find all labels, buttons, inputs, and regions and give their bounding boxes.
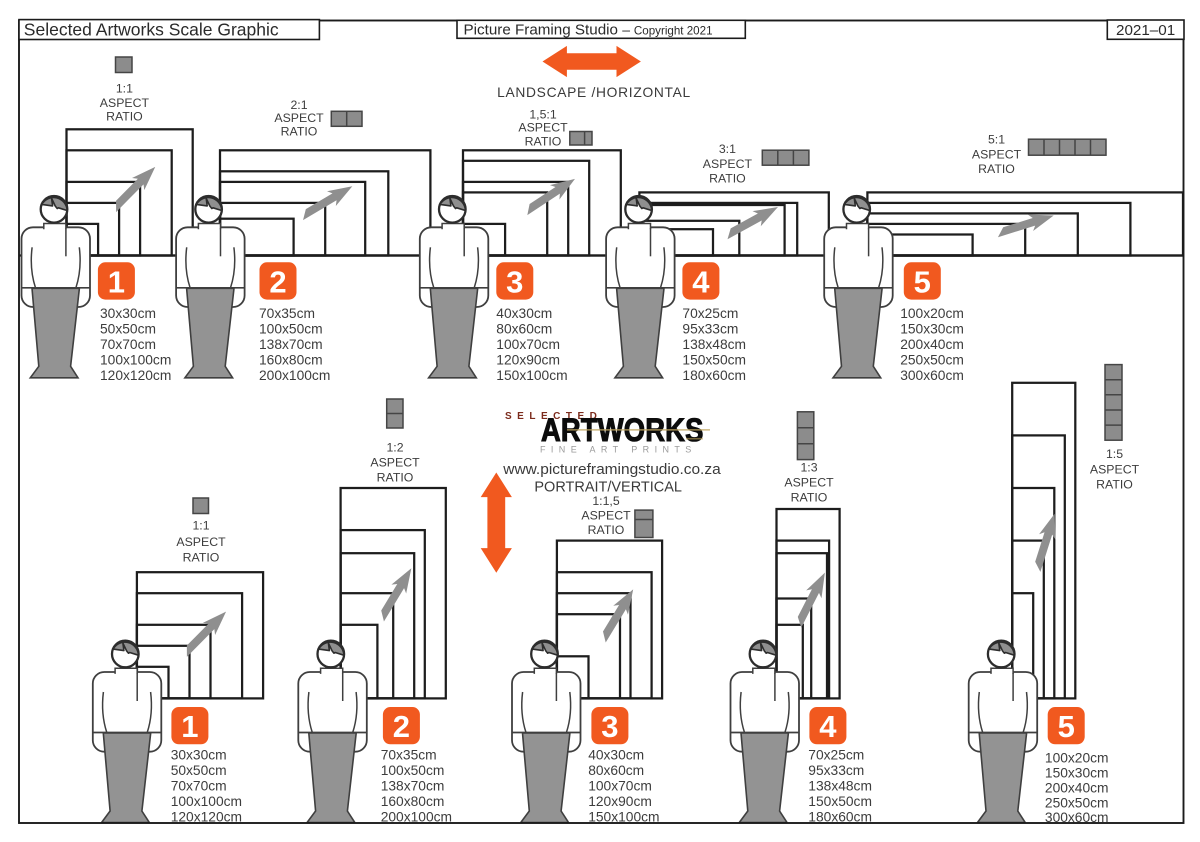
- svg-text:70x70cm: 70x70cm: [171, 779, 227, 794]
- svg-text:www.pictureframingstudio.co.za: www.pictureframingstudio.co.za: [502, 462, 721, 478]
- svg-text:180x60cm: 180x60cm: [682, 368, 746, 383]
- svg-text:1:1,5: 1:1,5: [592, 494, 620, 508]
- svg-text:4: 4: [819, 709, 837, 744]
- svg-text:30x30cm: 30x30cm: [100, 306, 156, 321]
- svg-text:95x33cm: 95x33cm: [682, 321, 738, 336]
- svg-text:1:1: 1:1: [192, 519, 209, 533]
- svg-text:4: 4: [692, 264, 710, 299]
- svg-text:5:1: 5:1: [988, 132, 1005, 146]
- svg-text:70x25cm: 70x25cm: [682, 306, 738, 321]
- svg-text:120x120cm: 120x120cm: [100, 368, 171, 383]
- svg-text:40x30cm: 40x30cm: [496, 306, 552, 321]
- svg-text:100x70cm: 100x70cm: [588, 779, 652, 794]
- svg-text:70x35cm: 70x35cm: [381, 747, 437, 762]
- svg-text:1: 1: [181, 709, 198, 744]
- svg-text:RATIO: RATIO: [588, 523, 625, 537]
- svg-text:1,5:1: 1,5:1: [529, 108, 557, 122]
- svg-text:FINE ART PRINTS: FINE ART PRINTS: [540, 444, 697, 454]
- svg-text:1:1: 1:1: [116, 82, 133, 96]
- svg-text:Selected Artworks Scale Graphi: Selected Artworks Scale Graphic: [24, 20, 279, 40]
- svg-text:100x100cm: 100x100cm: [100, 352, 171, 367]
- svg-text:100x50cm: 100x50cm: [381, 763, 445, 778]
- svg-text:70x35cm: 70x35cm: [259, 306, 315, 321]
- svg-text:150x100cm: 150x100cm: [496, 368, 567, 383]
- svg-text:180x60cm: 180x60cm: [808, 810, 872, 825]
- svg-text:3:1: 3:1: [719, 142, 736, 156]
- svg-text:150x50cm: 150x50cm: [808, 794, 872, 809]
- svg-text:150x50cm: 150x50cm: [682, 352, 746, 367]
- svg-text:120x120cm: 120x120cm: [171, 810, 242, 825]
- svg-text:Picture Framing Studio – Copyr: Picture Framing Studio – Copyright 2021: [464, 21, 713, 38]
- svg-text:300x60cm: 300x60cm: [1045, 810, 1109, 825]
- svg-text:120x90cm: 120x90cm: [496, 352, 560, 367]
- svg-text:ASPECT: ASPECT: [274, 111, 324, 125]
- svg-text:ASPECT: ASPECT: [370, 456, 420, 470]
- svg-text:100x70cm: 100x70cm: [496, 337, 560, 352]
- svg-text:2021–01: 2021–01: [1116, 22, 1175, 39]
- svg-text:138x48cm: 138x48cm: [808, 779, 872, 794]
- svg-text:200x100cm: 200x100cm: [381, 810, 452, 825]
- svg-text:RATIO: RATIO: [709, 171, 746, 185]
- svg-text:150x100cm: 150x100cm: [588, 810, 659, 825]
- svg-text:2: 2: [393, 709, 410, 744]
- svg-text:80x60cm: 80x60cm: [588, 763, 644, 778]
- svg-text:RATIO: RATIO: [183, 550, 220, 564]
- svg-text:40x30cm: 40x30cm: [588, 747, 644, 762]
- svg-text:1:2: 1:2: [386, 441, 403, 455]
- svg-text:138x70cm: 138x70cm: [381, 779, 445, 794]
- svg-text:200x40cm: 200x40cm: [900, 337, 964, 352]
- svg-text:RATIO: RATIO: [281, 125, 318, 139]
- svg-text:160x80cm: 160x80cm: [259, 352, 323, 367]
- svg-text:3: 3: [506, 264, 523, 299]
- svg-text:200x40cm: 200x40cm: [1045, 780, 1109, 795]
- svg-text:160x80cm: 160x80cm: [381, 794, 445, 809]
- svg-text:100x50cm: 100x50cm: [259, 321, 323, 336]
- svg-text:5: 5: [914, 264, 931, 299]
- svg-text:ASPECT: ASPECT: [703, 157, 753, 171]
- svg-text:ASPECT: ASPECT: [581, 509, 631, 523]
- svg-text:300x60cm: 300x60cm: [900, 368, 964, 383]
- svg-text:RATIO: RATIO: [525, 134, 562, 148]
- svg-text:150x30cm: 150x30cm: [900, 321, 964, 336]
- svg-text:100x20cm: 100x20cm: [900, 306, 964, 321]
- svg-text:100x100cm: 100x100cm: [171, 794, 242, 809]
- svg-text:ASPECT: ASPECT: [518, 121, 568, 135]
- svg-text:2: 2: [269, 264, 286, 299]
- svg-text:100x20cm: 100x20cm: [1045, 751, 1109, 766]
- svg-text:5: 5: [1058, 709, 1075, 744]
- svg-text:50x50cm: 50x50cm: [171, 763, 227, 778]
- svg-text:138x70cm: 138x70cm: [259, 337, 323, 352]
- svg-text:138x48cm: 138x48cm: [682, 337, 746, 352]
- svg-text:1:3: 1:3: [800, 461, 817, 475]
- svg-text:150x30cm: 150x30cm: [1045, 766, 1109, 781]
- svg-text:LANDSCAPE /HORIZONTAL: LANDSCAPE /HORIZONTAL: [497, 85, 691, 100]
- svg-text:ASPECT: ASPECT: [100, 96, 150, 110]
- svg-text:RATIO: RATIO: [106, 110, 143, 124]
- svg-text:RATIO: RATIO: [978, 162, 1015, 176]
- svg-text:250x50cm: 250x50cm: [1045, 795, 1109, 810]
- svg-text:ASPECT: ASPECT: [176, 535, 226, 549]
- svg-text:50x50cm: 50x50cm: [100, 321, 156, 336]
- svg-text:250x50cm: 250x50cm: [900, 352, 964, 367]
- svg-text:ASPECT: ASPECT: [972, 148, 1022, 162]
- svg-text:1: 1: [108, 264, 125, 299]
- svg-text:95x33cm: 95x33cm: [808, 763, 864, 778]
- svg-text:ASPECT: ASPECT: [1090, 463, 1140, 477]
- svg-text:3: 3: [601, 709, 618, 744]
- svg-text:2:1: 2:1: [290, 98, 307, 112]
- svg-text:70x70cm: 70x70cm: [100, 337, 156, 352]
- svg-text:PORTRAIT/VERTICAL: PORTRAIT/VERTICAL: [534, 479, 682, 495]
- svg-text:1:5: 1:5: [1106, 447, 1123, 461]
- svg-text:80x60cm: 80x60cm: [496, 321, 552, 336]
- svg-text:200x100cm: 200x100cm: [259, 368, 330, 383]
- svg-text:RATIO: RATIO: [791, 491, 828, 505]
- svg-text:ASPECT: ASPECT: [784, 476, 834, 490]
- svg-text:120x90cm: 120x90cm: [588, 794, 652, 809]
- svg-text:30x30cm: 30x30cm: [171, 747, 227, 762]
- svg-text:70x25cm: 70x25cm: [808, 747, 864, 762]
- svg-text:RATIO: RATIO: [1096, 478, 1133, 492]
- svg-text:RATIO: RATIO: [377, 471, 414, 485]
